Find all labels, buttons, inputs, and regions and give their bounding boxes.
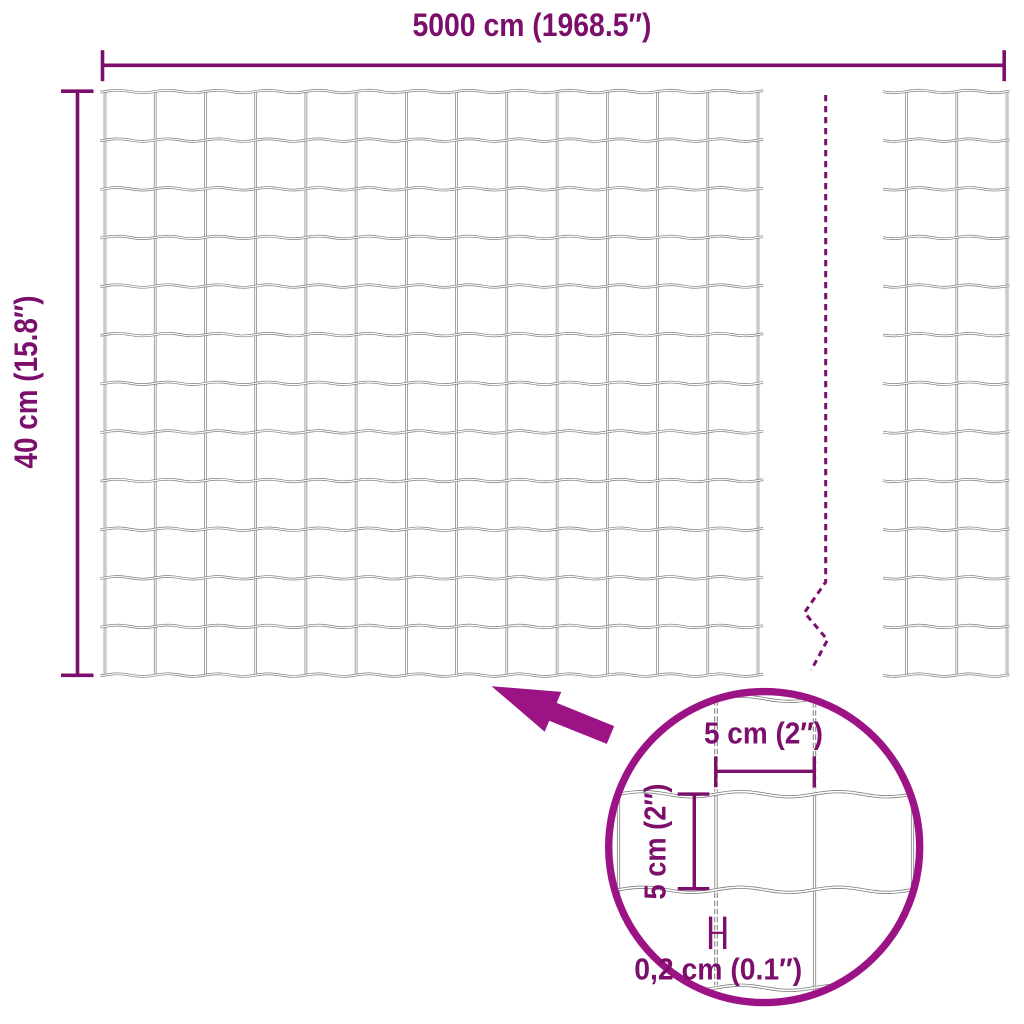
svg-text:0,2 cm (0.1″): 0,2 cm (0.1″) (634, 952, 802, 987)
svg-text:5 cm (2″): 5 cm (2″) (704, 716, 823, 751)
svg-text:5 cm (2″): 5 cm (2″) (638, 784, 673, 900)
svg-text:40 cm (15.8″): 40 cm (15.8″) (8, 296, 44, 469)
svg-text:5000 cm (1968.5″): 5000 cm (1968.5″) (413, 7, 652, 43)
